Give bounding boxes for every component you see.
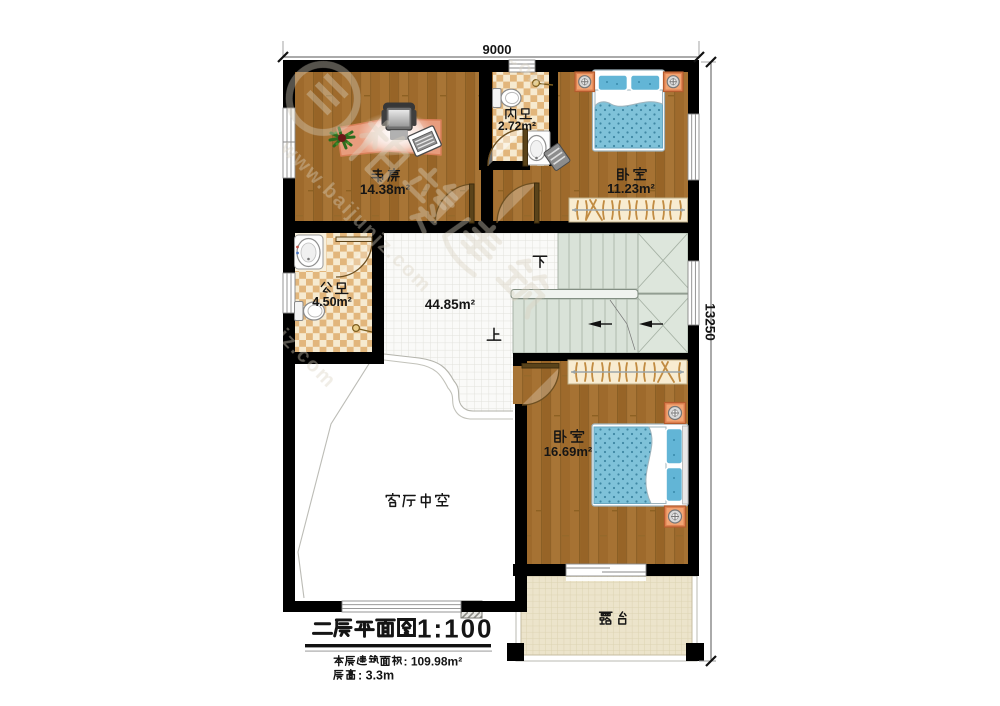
svg-text:2.72m²: 2.72m²: [498, 119, 536, 133]
svg-text:9000: 9000: [483, 42, 512, 57]
svg-text:4.50m²: 4.50m²: [312, 295, 352, 309]
svg-text:: 3.3m: : 3.3m: [358, 669, 394, 683]
svg-text:11.23m²: 11.23m²: [607, 181, 655, 196]
svg-text:1:100: 1:100: [417, 614, 494, 644]
svg-text:14.38m²: 14.38m²: [360, 182, 411, 197]
svg-text:13250: 13250: [703, 303, 718, 341]
svg-text:16.69m²: 16.69m²: [544, 444, 593, 459]
svg-text:44.85m²: 44.85m²: [425, 297, 476, 312]
svg-text:: 109.98m²: : 109.98m²: [404, 655, 463, 669]
